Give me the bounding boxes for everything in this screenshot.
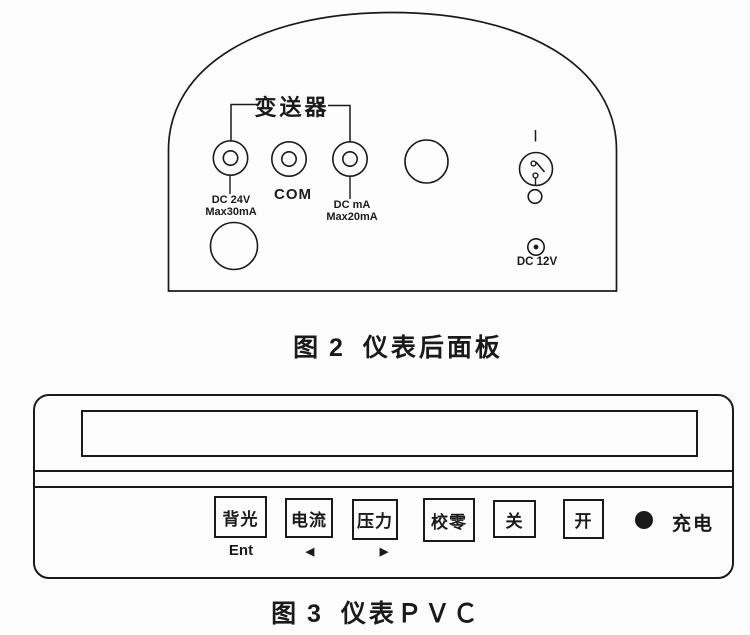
jack-dcma-label: DC mA Max20mA <box>326 200 377 223</box>
indicator-hole <box>528 190 542 204</box>
transmitter-bracket-left <box>231 105 257 141</box>
power-switch <box>520 130 553 186</box>
jack-dcma <box>333 142 367 199</box>
button-on: 开 <box>563 499 604 539</box>
jack-dc24v-label: DC 24V Max30mA <box>205 195 256 218</box>
mount-hole <box>211 223 258 270</box>
jack-dcma-label-line1: DC mA <box>326 200 377 212</box>
button-backlight-sublabel: Ent <box>229 542 253 559</box>
figure3-caption-number: 图 3 <box>271 600 323 628</box>
figure3-caption: 图 3仪表ＰＶＣ <box>271 594 481 630</box>
jack-com-label: COM <box>274 186 312 203</box>
dc12v-jack <box>528 239 544 255</box>
figure3-caption-title: 仪表ＰＶＣ <box>341 600 481 628</box>
figure2-caption-number: 图 2 <box>293 334 345 362</box>
button-off: 关 <box>493 500 536 538</box>
panel-divider-line-bottom <box>34 486 733 488</box>
aux-hole <box>405 140 448 183</box>
figure2-caption: 图 2仪表后面板 <box>293 328 503 364</box>
button-zero-cal: 校零 <box>423 498 475 542</box>
button-current: 电流 <box>285 498 333 538</box>
rear-panel-outline <box>169 13 617 292</box>
figure2-caption-title: 仪表后面板 <box>363 334 503 362</box>
jack-dc24v-label-line1: DC 24V <box>205 195 256 207</box>
charge-indicator-dot <box>635 511 653 529</box>
jack-dc24v <box>213 141 247 194</box>
dc12v-label: DC 12V <box>517 256 557 268</box>
display-window <box>81 410 698 457</box>
charge-label: 充电 <box>672 509 714 536</box>
jack-com <box>272 142 306 176</box>
panel-divider-line-top <box>34 470 733 472</box>
manual-page: 变送器 DC 24V Max30mA COM DC mA Max20mA DC … <box>0 0 750 635</box>
transmitter-bracket-right <box>328 106 350 143</box>
button-backlight: 背光 <box>214 496 267 538</box>
jack-dc24v-label-line2: Max30mA <box>205 207 256 219</box>
arrow-right-icon: ▶ <box>380 545 388 558</box>
rear-panel-diagram <box>0 0 750 330</box>
transmitter-label: 变送器 <box>254 90 329 122</box>
arrow-left-icon: ◀ <box>306 545 314 558</box>
jack-dcma-label-line2: Max20mA <box>326 212 377 224</box>
button-pressure: 压力 <box>352 499 398 540</box>
